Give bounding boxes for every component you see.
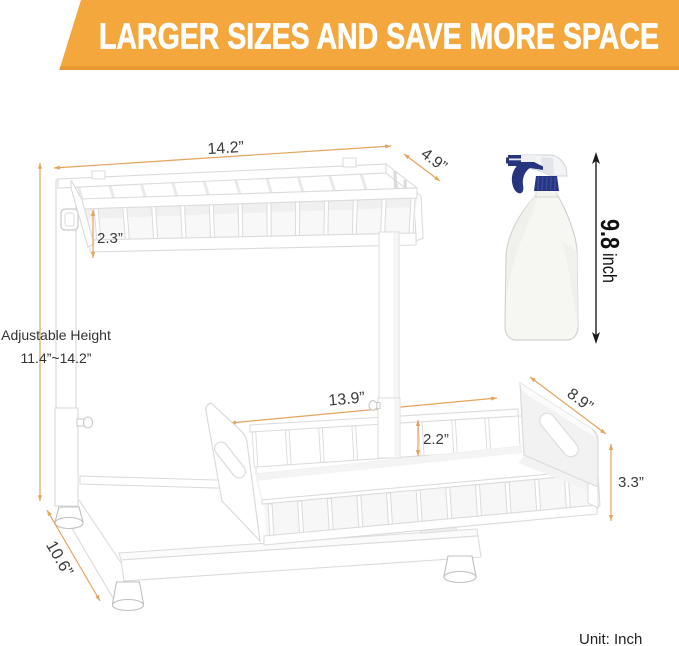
svg-text:14.2”: 14.2”	[207, 139, 244, 158]
svg-text:9.8: 9.8	[595, 219, 623, 249]
svg-text:3.3”: 3.3”	[618, 474, 644, 491]
svg-text:2.2”: 2.2”	[423, 431, 449, 448]
svg-text:LARGER SIZES AND SAVE MORE SPA: LARGER SIZES AND SAVE MORE SPACE	[99, 16, 659, 57]
svg-text:11.4”~14.2”: 11.4”~14.2”	[21, 350, 92, 366]
svg-text:13.9”: 13.9”	[328, 389, 366, 409]
svg-text:Unit: Inch: Unit: Inch	[579, 631, 642, 646]
svg-text:inch: inch	[598, 253, 619, 283]
svg-text:Adjustable Height: Adjustable Height	[1, 327, 111, 343]
svg-text:2.3”: 2.3”	[97, 230, 123, 247]
